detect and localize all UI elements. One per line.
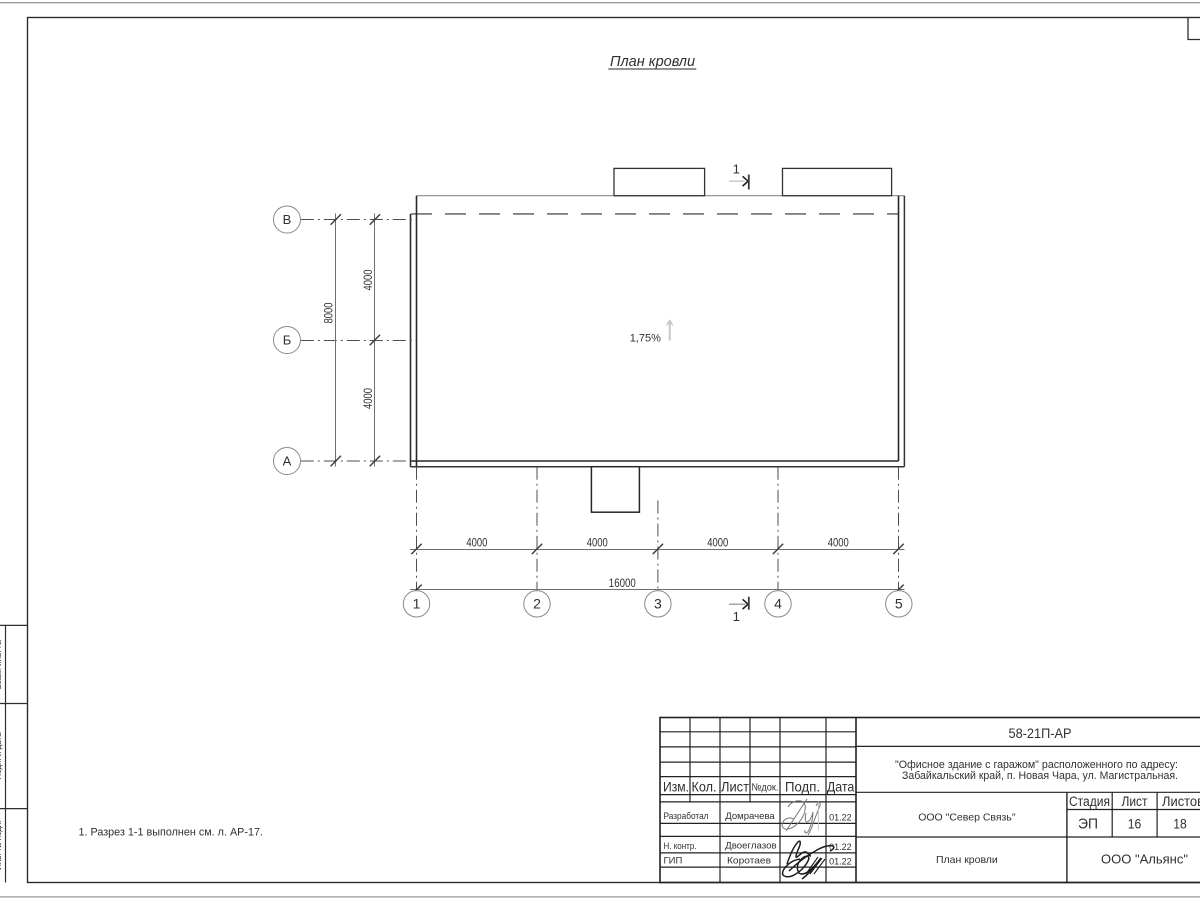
svg-text:Дата: Дата xyxy=(827,779,855,795)
svg-text:Инв. № подл.: Инв. № подл. xyxy=(0,820,3,870)
svg-text:Б: Б xyxy=(283,333,292,348)
svg-text:4000: 4000 xyxy=(587,536,608,550)
svg-text:А: А xyxy=(283,454,292,469)
svg-text:1: 1 xyxy=(733,162,740,177)
svg-text:4: 4 xyxy=(774,596,782,612)
svg-text:Н. контр.: Н. контр. xyxy=(664,841,697,852)
svg-text:1: 1 xyxy=(733,609,740,624)
svg-text:Взам. инв. №: Взам. инв. № xyxy=(0,639,3,689)
svg-text:3: 3 xyxy=(654,596,662,612)
svg-text:Стадия: Стадия xyxy=(1069,794,1110,809)
svg-text:1,75%: 1,75% xyxy=(630,332,661,344)
svg-text:Коротаев: Коротаев xyxy=(727,856,771,867)
svg-text:ЭП: ЭП xyxy=(1078,817,1098,833)
svg-text:Домрачева: Домрачева xyxy=(725,811,775,822)
svg-text:01.22: 01.22 xyxy=(829,857,852,867)
svg-text:4000: 4000 xyxy=(828,536,849,550)
svg-text:4000: 4000 xyxy=(466,536,487,550)
svg-text:Двоеглазов: Двоеглазов xyxy=(725,841,776,852)
svg-text:Лист: Лист xyxy=(1122,794,1148,809)
svg-text:№док.: №док. xyxy=(752,782,779,794)
svg-text:Подп.: Подп. xyxy=(785,779,820,795)
svg-text:18: 18 xyxy=(1173,816,1187,832)
svg-text:План кровли: План кровли xyxy=(936,854,998,866)
svg-text:01.22: 01.22 xyxy=(829,813,852,823)
svg-text:В: В xyxy=(283,212,292,227)
svg-text:Листов: Листов xyxy=(1162,794,1200,809)
svg-text:Забайкальский край, п. Новая Ч: Забайкальский край, п. Новая Чара, ул. М… xyxy=(902,770,1178,782)
svg-text:5: 5 xyxy=(895,596,903,612)
svg-text:4000: 4000 xyxy=(361,269,375,290)
svg-text:Изм.: Изм. xyxy=(663,779,689,795)
svg-text:Подп. и дата: Подп. и дата xyxy=(0,732,3,780)
svg-text:Лист: Лист xyxy=(721,779,750,795)
svg-text:16: 16 xyxy=(1128,816,1142,832)
svg-text:58-21П-АР: 58-21П-АР xyxy=(1009,725,1072,741)
svg-text:8000: 8000 xyxy=(322,302,336,323)
svg-text:16000: 16000 xyxy=(609,576,636,590)
svg-text:2: 2 xyxy=(533,596,541,612)
svg-text:1. Разрез 1-1 выполнен см. л.: 1. Разрез 1-1 выполнен см. л. АР-17. xyxy=(79,827,263,839)
svg-text:ООО "Север Связь": ООО "Север Связь" xyxy=(918,812,1016,824)
svg-text:Разработал: Разработал xyxy=(664,811,709,822)
svg-text:ГИП: ГИП xyxy=(664,856,683,867)
svg-text:План кровли: План кровли xyxy=(610,54,695,70)
svg-text:ООО "Альянс": ООО "Альянс" xyxy=(1101,852,1188,867)
svg-text:Кол.: Кол. xyxy=(692,779,717,795)
svg-text:4000: 4000 xyxy=(707,536,728,550)
svg-text:1: 1 xyxy=(413,596,421,612)
svg-text:4000: 4000 xyxy=(361,388,375,409)
